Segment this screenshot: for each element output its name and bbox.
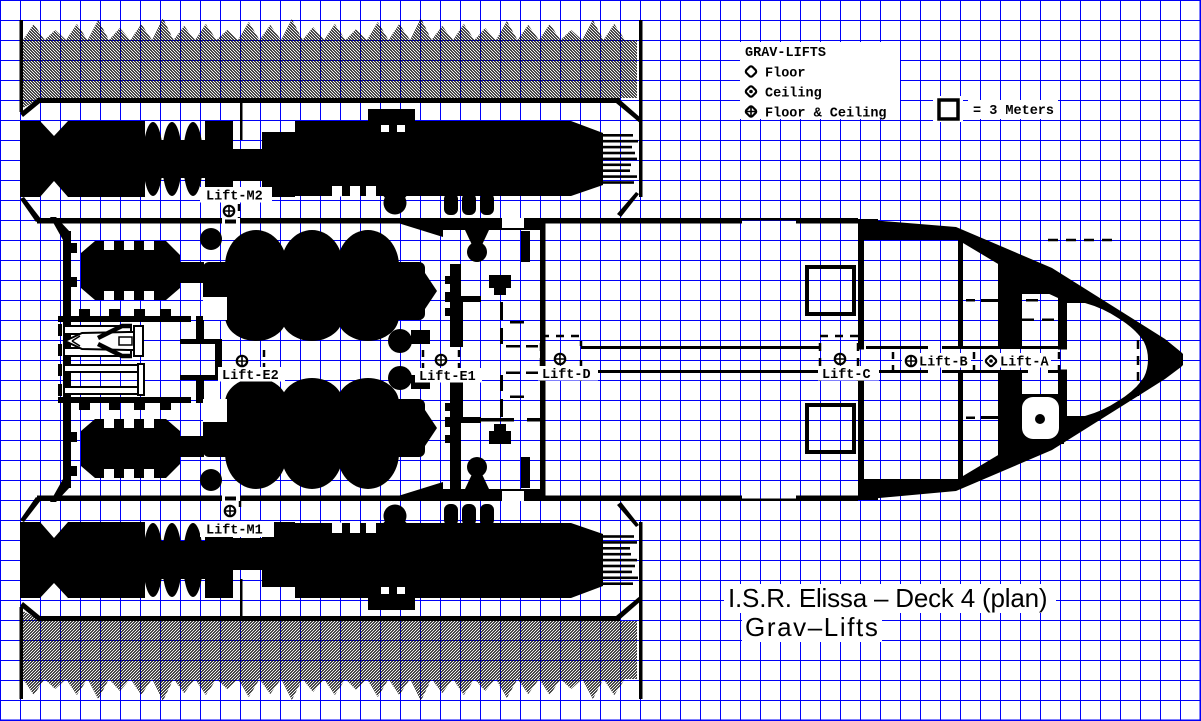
svg-text:Lift-B: Lift-B <box>919 356 968 371</box>
svg-text:= 3 Meters: = 3 Meters <box>973 104 1054 119</box>
svg-text:Lift-M2: Lift-M2 <box>206 190 263 205</box>
svg-text:Lift-E2: Lift-E2 <box>222 369 279 384</box>
svg-text:Ceiling: Ceiling <box>765 87 822 102</box>
svg-text:Floor & Ceiling: Floor & Ceiling <box>765 107 887 122</box>
svg-text:Grav–Lifts: Grav–Lifts <box>745 612 880 642</box>
svg-text:Lift-A: Lift-A <box>1000 356 1050 371</box>
svg-text:Floor: Floor <box>765 67 806 82</box>
svg-text:GRAV-LIFTS: GRAV-LIFTS <box>745 46 826 61</box>
svg-text:Lift-C: Lift-C <box>822 368 871 383</box>
svg-text:Lift-D: Lift-D <box>542 368 591 383</box>
svg-text:Lift-E1: Lift-E1 <box>419 370 476 385</box>
svg-text:I.S.R. Elissa – Deck 4 (plan): I.S.R. Elissa – Deck 4 (plan) <box>728 583 1047 613</box>
svg-text:Lift-M1: Lift-M1 <box>206 524 263 539</box>
